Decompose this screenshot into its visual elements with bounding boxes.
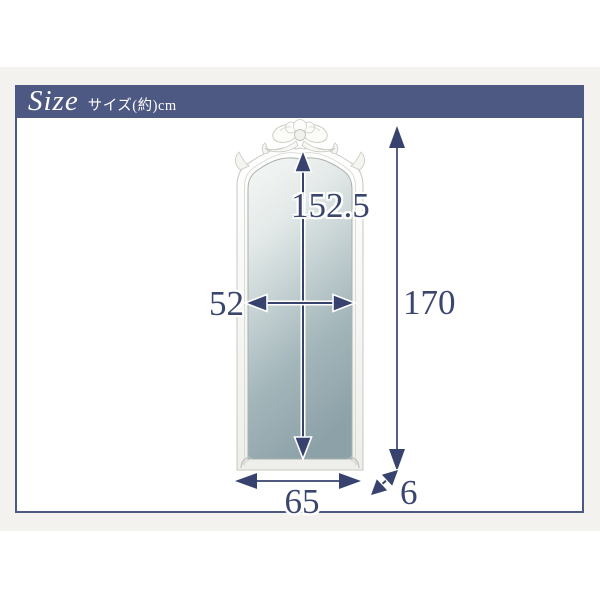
ribbon-bow-icon bbox=[265, 120, 335, 152]
mirror-illustration bbox=[230, 122, 370, 474]
size-card-header: Size サイズ(約)cm bbox=[17, 87, 582, 118]
inner-height-label: 152.5 bbox=[291, 188, 370, 223]
inner-width-label: 52 bbox=[209, 286, 244, 321]
size-unit-label: サイズ(約)cm bbox=[88, 94, 177, 115]
outer-height-label: 170 bbox=[403, 285, 456, 320]
page-background: Size サイズ(約)cm bbox=[0, 0, 600, 600]
depth-label: 6 bbox=[400, 475, 418, 510]
outer-width-label: 65 bbox=[283, 484, 321, 519]
size-title: Size bbox=[28, 87, 79, 116]
